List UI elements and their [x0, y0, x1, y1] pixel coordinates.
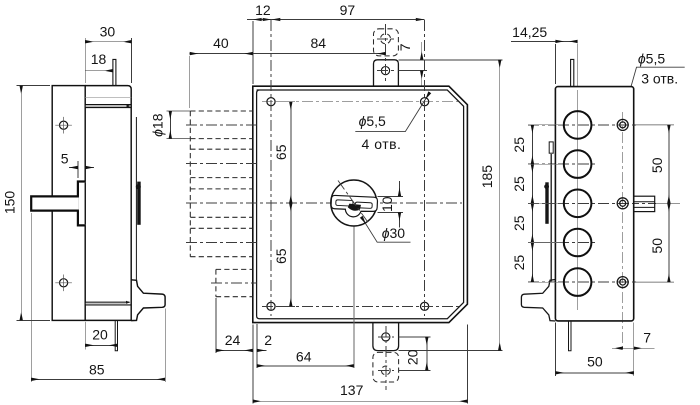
svg-text:50: 50	[649, 157, 665, 173]
svg-text:ϕ18: ϕ18	[149, 113, 165, 137]
svg-text:7: 7	[397, 43, 413, 51]
svg-text:ϕ5,5: ϕ5,5	[638, 50, 665, 66]
svg-text:10: 10	[379, 196, 395, 212]
svg-text:50: 50	[649, 238, 665, 254]
svg-text:12: 12	[255, 2, 271, 18]
svg-text:40: 40	[213, 35, 229, 51]
svg-text:ϕ30: ϕ30	[382, 225, 406, 241]
svg-text:20: 20	[92, 326, 108, 342]
svg-text:3 отв.: 3 отв.	[641, 70, 678, 86]
svg-text:5: 5	[61, 150, 69, 166]
svg-text:65: 65	[273, 248, 289, 264]
svg-text:20: 20	[404, 349, 420, 365]
svg-text:25: 25	[511, 215, 527, 231]
svg-text:137: 137	[340, 382, 364, 398]
svg-text:84: 84	[311, 35, 327, 51]
svg-text:18: 18	[91, 51, 107, 67]
svg-text:185: 185	[479, 165, 495, 189]
svg-text:50: 50	[587, 354, 603, 370]
svg-text:2: 2	[264, 332, 272, 348]
svg-text:25: 25	[511, 255, 527, 271]
svg-text:25: 25	[511, 137, 527, 153]
svg-text:7: 7	[643, 329, 651, 345]
svg-text:97: 97	[340, 2, 356, 18]
svg-text:150: 150	[1, 191, 17, 215]
svg-text:ϕ5,5: ϕ5,5	[359, 113, 386, 129]
svg-text:14,25: 14,25	[512, 24, 547, 40]
svg-text:65: 65	[273, 144, 289, 160]
svg-text:4 отв.: 4 отв.	[362, 136, 402, 152]
svg-text:85: 85	[89, 361, 105, 377]
svg-text:64: 64	[296, 349, 312, 365]
svg-text:24: 24	[225, 332, 241, 348]
svg-text:30: 30	[100, 23, 116, 39]
svg-text:25: 25	[511, 176, 527, 192]
